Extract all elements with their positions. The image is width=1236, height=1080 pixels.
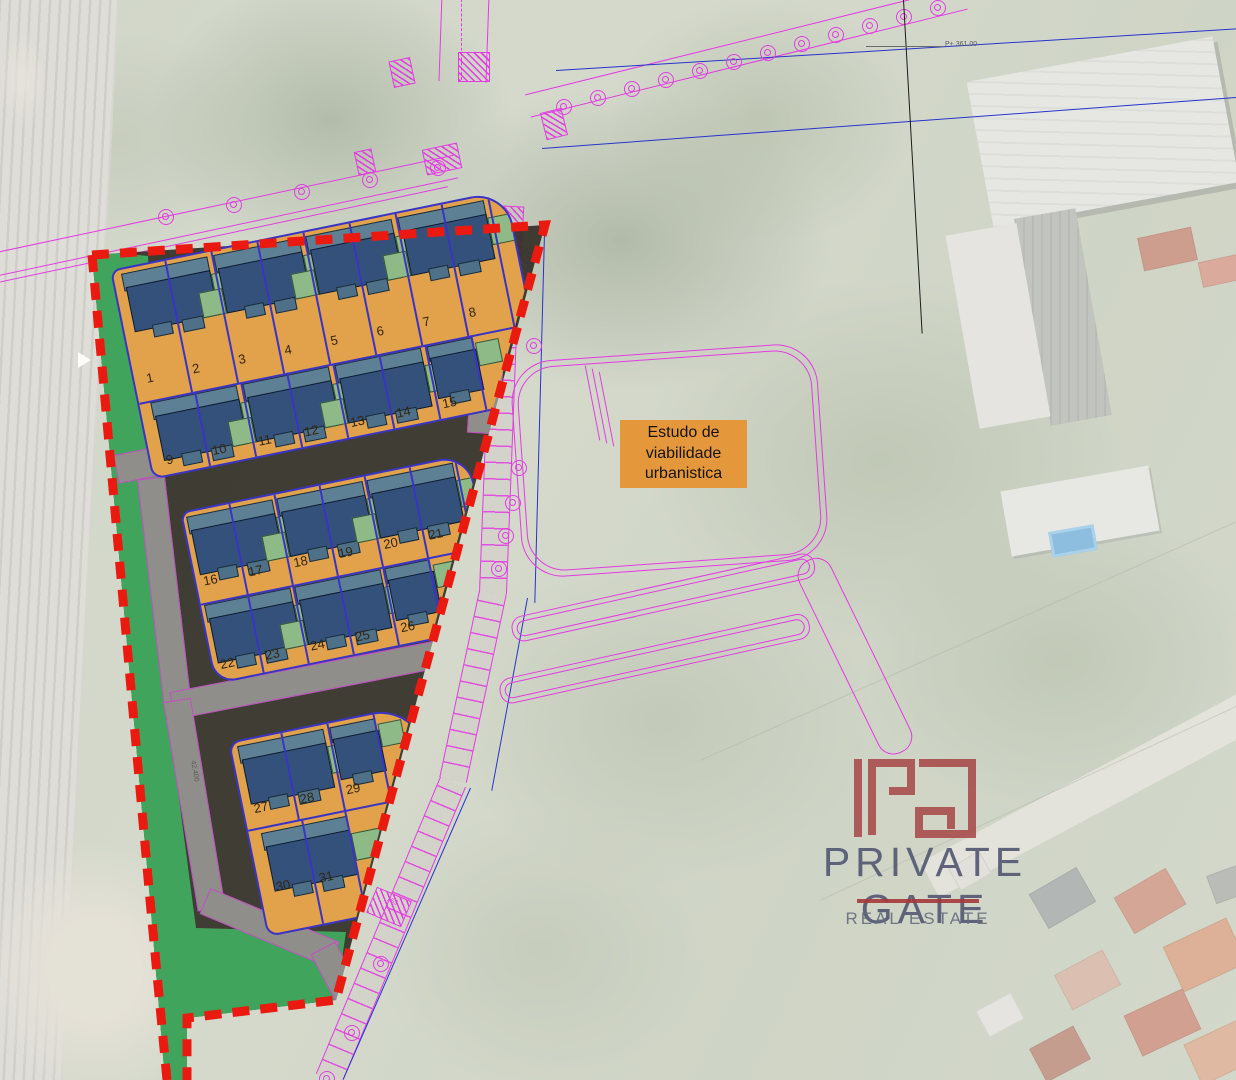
study-label-line2: viabilidade	[620, 444, 747, 465]
study-label-line1: Estudo de	[620, 423, 747, 444]
level-mark-tick	[866, 46, 942, 47]
boundary-east-path	[92, 225, 545, 1080]
study-label-line3: urbanistica	[620, 464, 747, 485]
logo-divider-rule	[857, 899, 979, 903]
level-mark-label: P+ 361.00	[945, 41, 977, 48]
logo-tagline-text: REAL ESTATE	[832, 909, 1004, 929]
survey-marker-triangle	[78, 352, 91, 368]
boundary-west-path	[92, 255, 167, 1080]
pg-monogram-icon	[853, 755, 983, 841]
site-plan-canvas: 1234567891011121314151617181920212223242…	[0, 0, 1236, 1080]
study-label-box: Estudo de viabilidade urbanistica	[620, 420, 747, 488]
private-gate-logo: PRIVATE GATE REAL ESTATE	[760, 753, 1090, 943]
